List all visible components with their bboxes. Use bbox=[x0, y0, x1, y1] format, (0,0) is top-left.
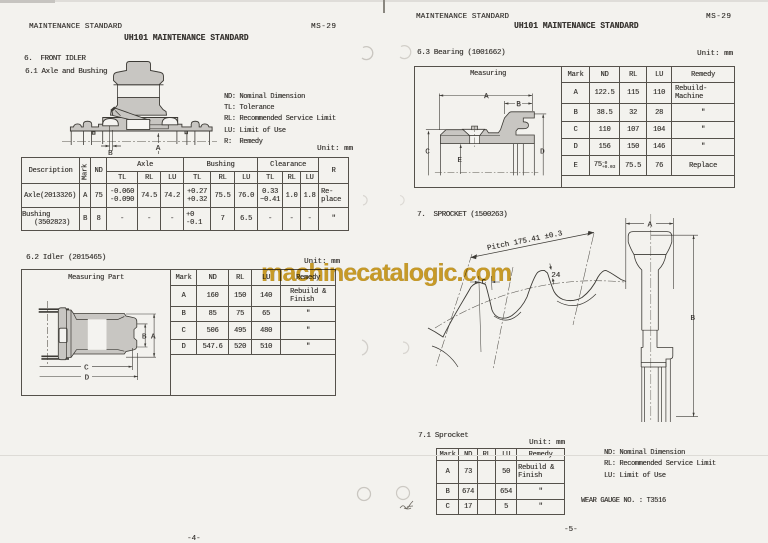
svg-text:B: B bbox=[690, 315, 695, 323]
svg-text:B: B bbox=[516, 101, 521, 109]
svg-text:C: C bbox=[84, 365, 89, 373]
svg-text:A: A bbox=[484, 93, 489, 101]
svg-text:D: D bbox=[85, 375, 90, 383]
svg-text:A: A bbox=[156, 145, 161, 153]
svg-text:C: C bbox=[425, 149, 430, 157]
svg-text:D: D bbox=[540, 149, 545, 157]
svg-text:B: B bbox=[142, 334, 147, 342]
svg-text:24: 24 bbox=[551, 272, 561, 280]
svg-text:A: A bbox=[151, 334, 156, 342]
svg-text:A: A bbox=[648, 221, 653, 229]
svg-text:Pitch 175.41 ±0.3: Pitch 175.41 ±0.3 bbox=[487, 230, 564, 253]
svg-text:E: E bbox=[457, 157, 462, 165]
